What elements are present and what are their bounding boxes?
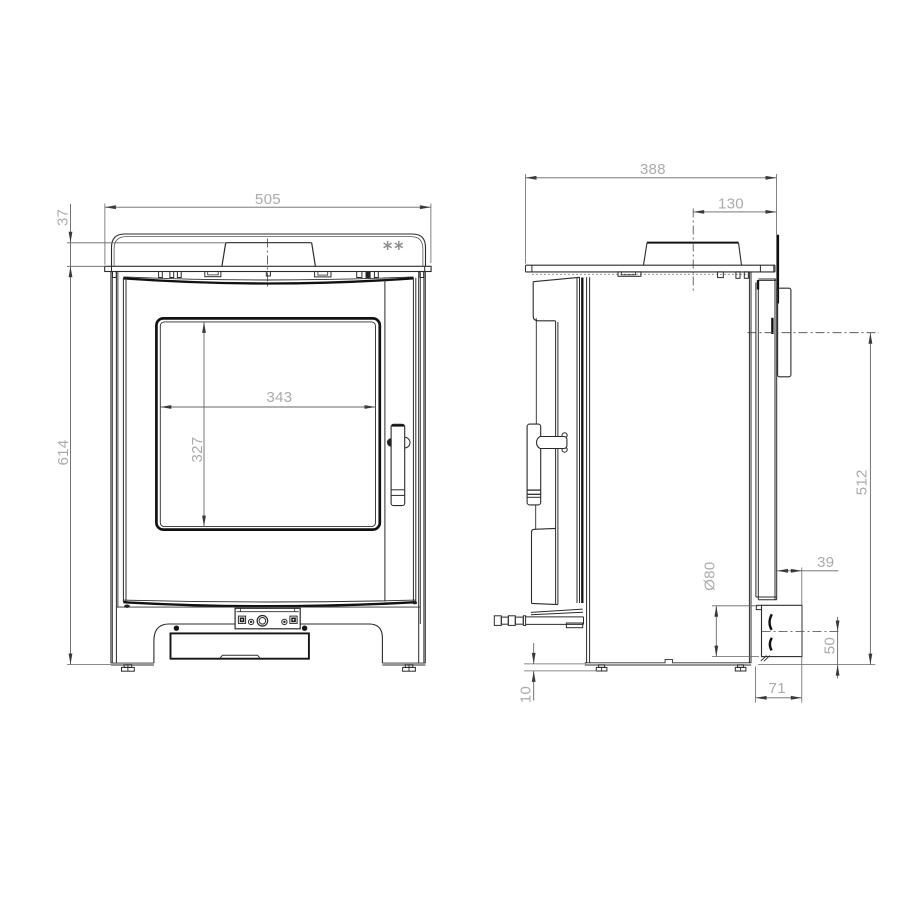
svg-text:343: 343: [266, 389, 292, 406]
svg-text:130: 130: [718, 195, 744, 212]
svg-text:512: 512: [853, 469, 870, 495]
svg-text:327: 327: [189, 437, 206, 463]
svg-text:50: 50: [821, 637, 838, 654]
svg-text:Ø80: Ø80: [702, 562, 719, 591]
svg-text:37: 37: [55, 209, 72, 226]
svg-text:614: 614: [55, 440, 72, 466]
svg-text:505: 505: [255, 191, 281, 208]
svg-text:39: 39: [817, 554, 834, 571]
svg-text:388: 388: [640, 161, 666, 178]
svg-text:71: 71: [769, 680, 786, 697]
svg-text:10: 10: [518, 686, 535, 703]
